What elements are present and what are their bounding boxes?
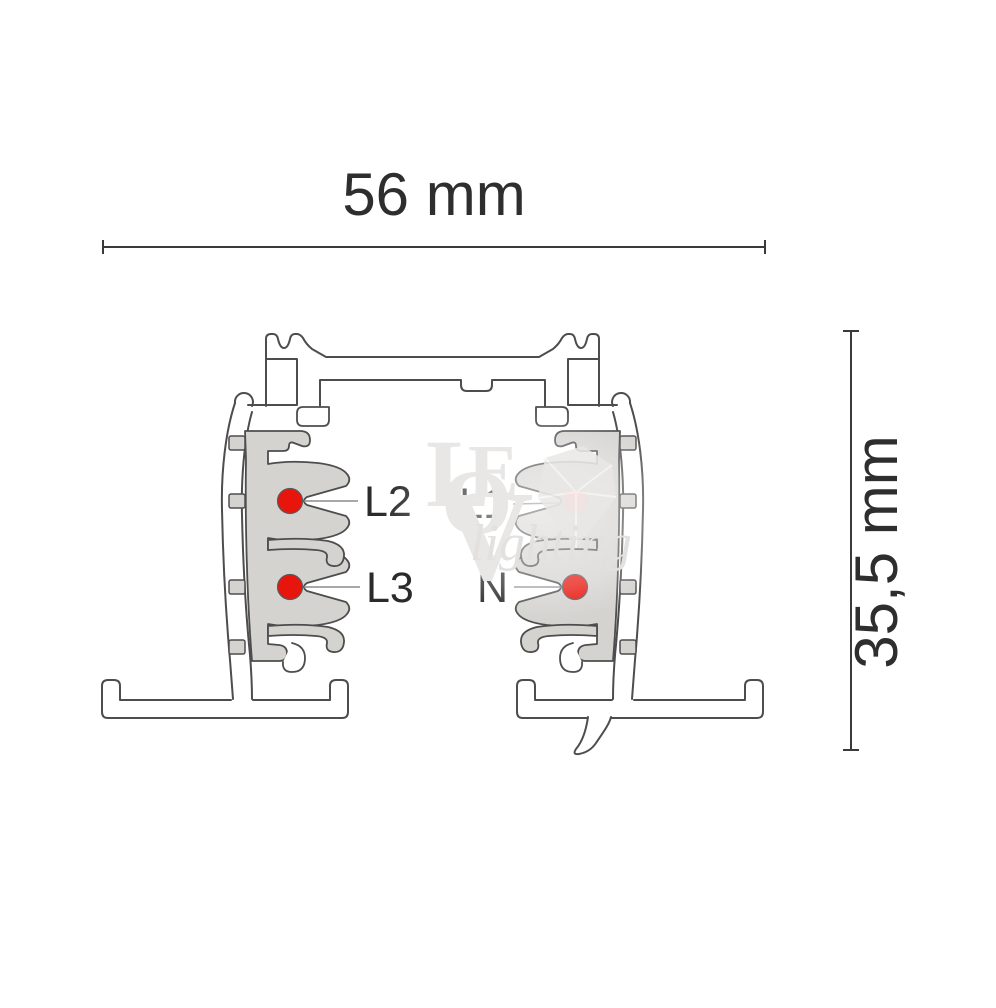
watermark-script: lighting: [470, 515, 632, 572]
insulator-tab: [229, 640, 245, 654]
watermark: L O E V lighting: [380, 410, 700, 620]
bottom-flange: [102, 680, 348, 718]
hanger-foot: [297, 407, 329, 426]
track-profile-diagram: 56 mm 35,5 mm: [0, 0, 996, 1008]
foot-j-hook: [283, 643, 305, 672]
insulator-tab: [229, 436, 245, 450]
width-dimension-label: 56 mm: [342, 161, 525, 228]
conductor-dot-upper: [278, 489, 303, 514]
conductor-dot-lower: [278, 575, 303, 600]
height-dimension-label: 35,5 mm: [843, 435, 910, 668]
insulator-tab: [229, 494, 245, 508]
insulator-tab: [229, 580, 245, 594]
profile-top-hat: [266, 334, 599, 406]
profile-inner-channel: [320, 380, 545, 406]
side-assembly-left: [102, 359, 349, 718]
diagram-svg: 56 mm 35,5 mm: [0, 0, 996, 1008]
ear-step: [248, 359, 297, 405]
width-dimension: [103, 240, 765, 254]
watermark-dot-wash: [562, 488, 588, 514]
